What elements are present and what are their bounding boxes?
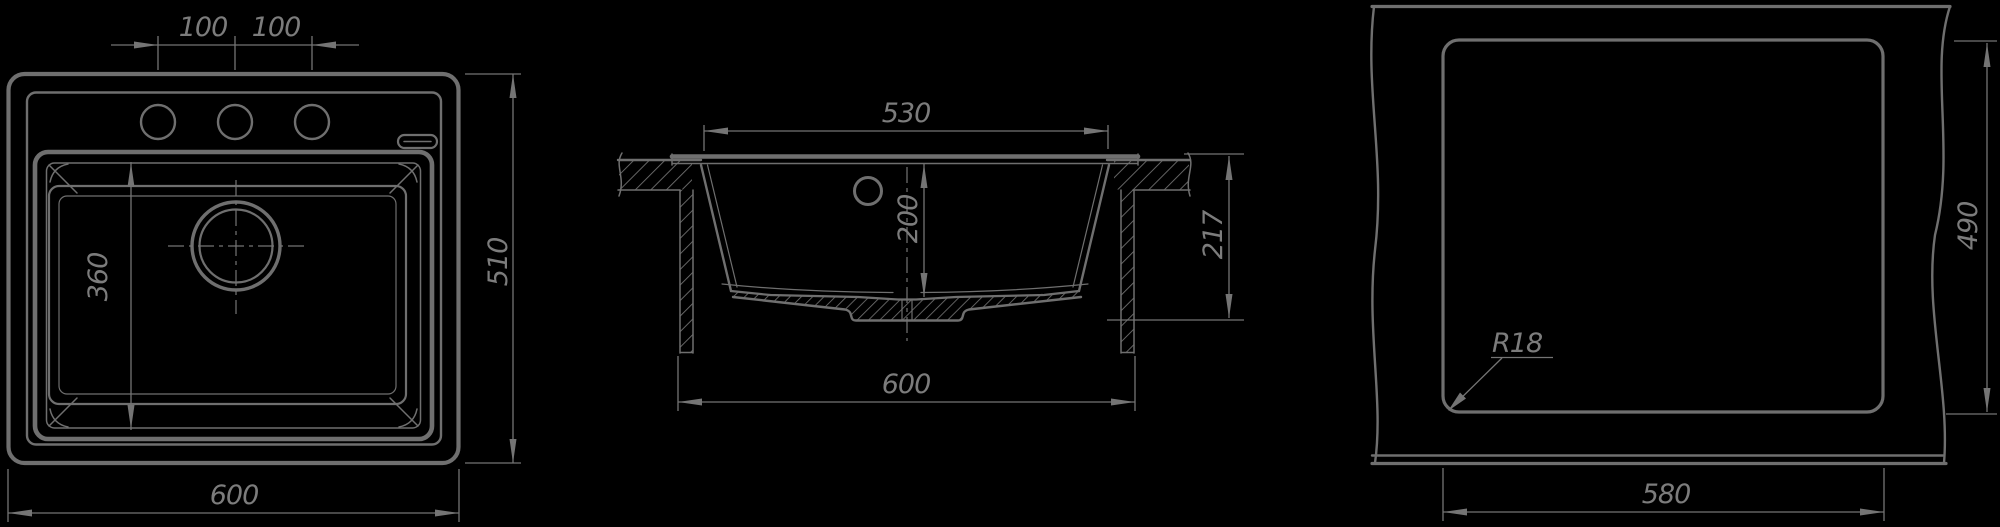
dim-label-corner-radius: R18 bbox=[1492, 328, 1542, 359]
sink-skirt-right bbox=[1121, 190, 1134, 353]
sink-skirt-left bbox=[680, 190, 693, 353]
dim-label-width: 600 bbox=[210, 480, 259, 511]
dim-label-bowl-width: 530 bbox=[882, 98, 931, 129]
dim-label-pitch-left: 100 bbox=[179, 12, 228, 43]
dim-label-bowl-depth: 360 bbox=[83, 253, 114, 302]
dim-label-bowl-depth: 200 bbox=[893, 195, 924, 244]
drawing-canvas: 100 100 510 600 360 bbox=[0, 0, 2000, 527]
dim-label-section-width: 600 bbox=[882, 369, 931, 400]
background bbox=[0, 0, 2000, 527]
sink-technical-drawing: 100 100 510 600 360 bbox=[0, 0, 2000, 527]
dim-label-total-height: 217 bbox=[1198, 210, 1229, 259]
dim-label-pitch-right: 100 bbox=[252, 12, 301, 43]
dim-label-cutout-width: 580 bbox=[1642, 479, 1691, 510]
dim-label-cutout-depth: 490 bbox=[1953, 202, 1984, 251]
dim-label-depth: 510 bbox=[483, 238, 514, 287]
